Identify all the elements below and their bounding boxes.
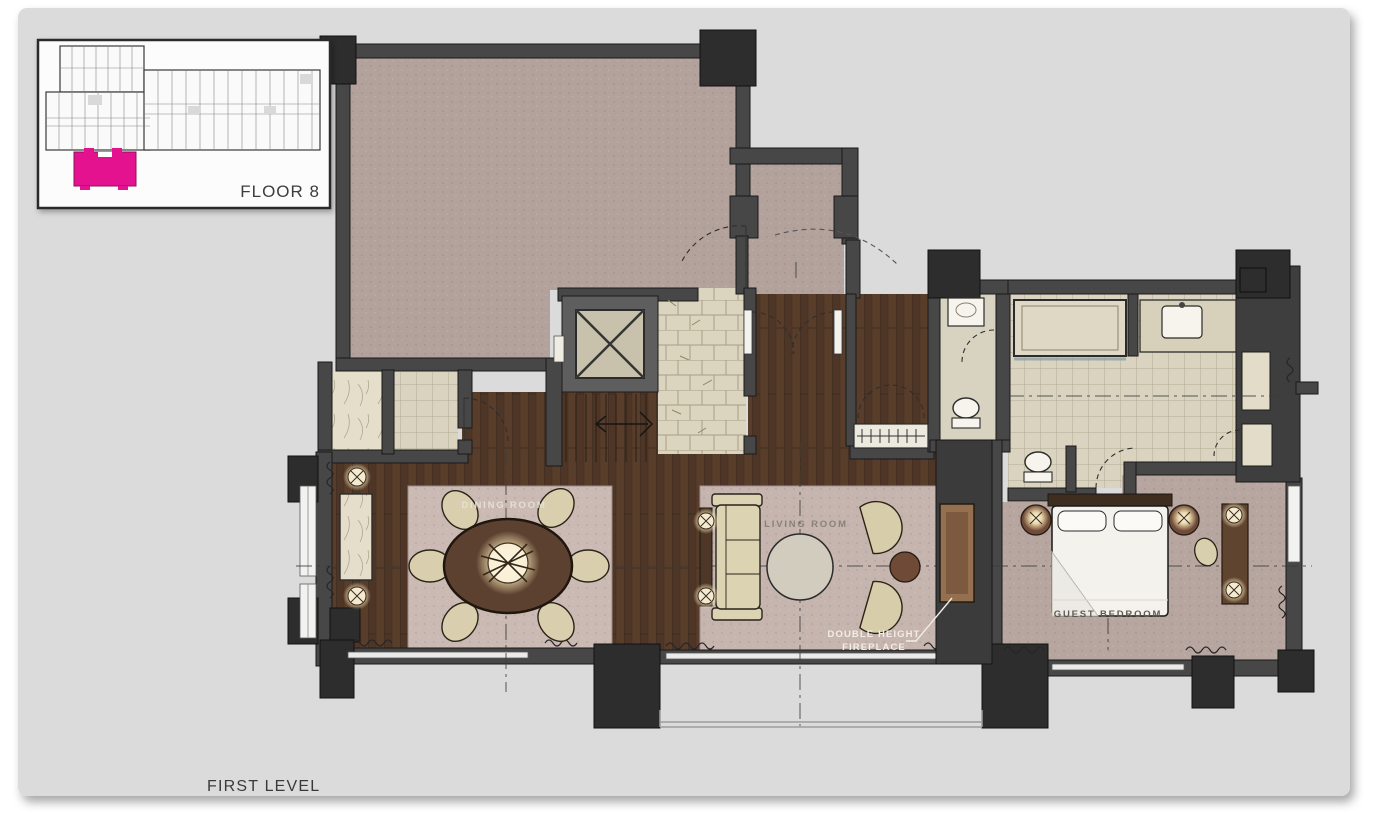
highlighted-unit — [74, 148, 136, 190]
pillow — [1058, 511, 1106, 531]
lamp — [1023, 505, 1049, 531]
keyplan-floor-label: FLOOR 8 — [240, 182, 320, 201]
lamp — [693, 583, 719, 609]
toilet — [1025, 452, 1051, 472]
entry-door-leaf — [744, 310, 752, 354]
chandelier — [476, 531, 540, 595]
coffee-table — [767, 534, 833, 600]
fireplace-annotation-line1: DOUBLE HEIGHT — [828, 629, 921, 640]
elevator — [554, 296, 658, 392]
lamp — [1171, 505, 1197, 531]
toilet-tank — [1024, 472, 1052, 482]
level-label: FIRST LEVEL — [207, 778, 320, 795]
lamp — [343, 463, 371, 491]
foyer-tile-floor — [658, 288, 746, 454]
slide-canvas: DINING ROOM LIVING ROOM — [0, 0, 1386, 836]
bath-closet-niche — [1242, 352, 1270, 410]
marble-room-floor — [332, 372, 382, 450]
dining-room-label: DINING ROOM — [461, 500, 546, 511]
small-bath-floor — [394, 372, 458, 452]
lamp — [693, 508, 719, 534]
living-room-label: LIVING ROOM — [764, 519, 848, 530]
bed-headboard — [1048, 494, 1172, 506]
dining-console — [340, 494, 372, 580]
floor-plan-rendering: DINING ROOM LIVING ROOM — [0, 0, 1386, 836]
vanity-sink — [1162, 306, 1202, 338]
lamp — [1221, 577, 1247, 603]
powder-sink — [948, 298, 984, 326]
lamp — [343, 582, 371, 610]
pillow — [1114, 511, 1162, 531]
side-table — [890, 552, 920, 582]
bath-closet-niche-2 — [1242, 424, 1272, 466]
entry-door-leaf — [834, 310, 842, 354]
lamp — [1221, 502, 1247, 528]
powder-toilet — [953, 398, 979, 418]
powder-toilet-tank — [952, 418, 980, 428]
sofa — [712, 494, 762, 620]
keyplan-inset: FLOOR 8 — [38, 40, 330, 208]
fireplace — [936, 440, 992, 664]
fireplace-annotation-line2: FIREPLACE — [842, 642, 906, 653]
faucet — [1179, 302, 1185, 308]
bathtub — [1014, 300, 1126, 356]
guest-bedroom-label: GUEST BEDROOM — [1054, 609, 1162, 620]
coat-closet — [854, 424, 928, 448]
